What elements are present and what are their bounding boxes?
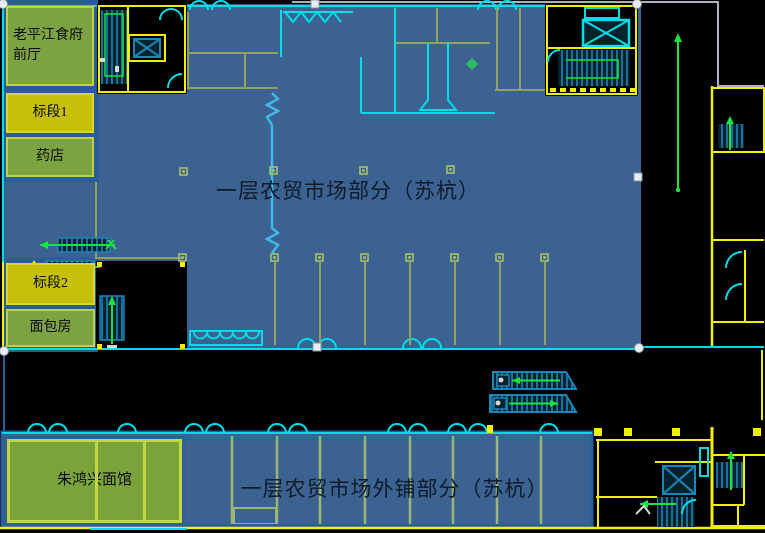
stairs-icon <box>558 50 630 86</box>
selection-handle <box>633 0 642 9</box>
zone-box-section-1[interactable]: 标段1 <box>6 93 94 133</box>
shop-divider <box>143 442 146 520</box>
escalator-icon-upper <box>493 372 576 389</box>
right-margin <box>639 33 764 420</box>
zone-box-label: 面包房 <box>30 318 72 338</box>
zone-box-pharmacy[interactable]: 药店 <box>6 137 94 177</box>
zone-box-label: 标段1 <box>33 103 68 123</box>
zone-box-label: 老平江食府前厅 <box>13 26 87 67</box>
top-left-stairwell <box>97 4 187 94</box>
door-arc-icon <box>726 284 742 300</box>
zone-box-restaurant-front-hall[interactable]: 老平江食府前厅 <box>6 6 94 86</box>
outer-shops-title: 一层农贸市场外铺部分（苏杭） <box>222 473 567 503</box>
top-right-stairwell <box>545 4 638 96</box>
selection-handle <box>0 347 9 356</box>
zone-box-label: 标段2 <box>33 274 68 294</box>
selection-handle <box>634 173 642 181</box>
elevator-icon <box>134 39 160 57</box>
elevator-icon <box>663 466 695 494</box>
zone-box-bakery[interactable]: 面包房 <box>6 309 95 347</box>
main-hall-title: 一层农贸市场部分（苏杭） <box>198 175 498 205</box>
selection-handle <box>311 0 319 8</box>
zone-box-noodle-shop[interactable]: 朱鸿兴面馆 <box>4 436 185 526</box>
shop-divider <box>95 442 98 520</box>
selection-handle <box>635 344 644 353</box>
selection-handle <box>313 343 321 351</box>
door-arc-icon <box>726 252 742 268</box>
bottom-right-stairwell <box>594 427 765 528</box>
elevator-icon <box>583 20 629 46</box>
escalator-icon-lower <box>490 395 576 412</box>
zone-box-label: 药店 <box>36 147 64 167</box>
cad-floorplan-canvas: 老平江食府前厅 标段1 药店 标段2 面包房 朱鸿兴面馆 一层农贸市场部分（苏杭… <box>0 0 765 533</box>
zone-box-section-2[interactable]: 标段2 <box>6 263 95 305</box>
